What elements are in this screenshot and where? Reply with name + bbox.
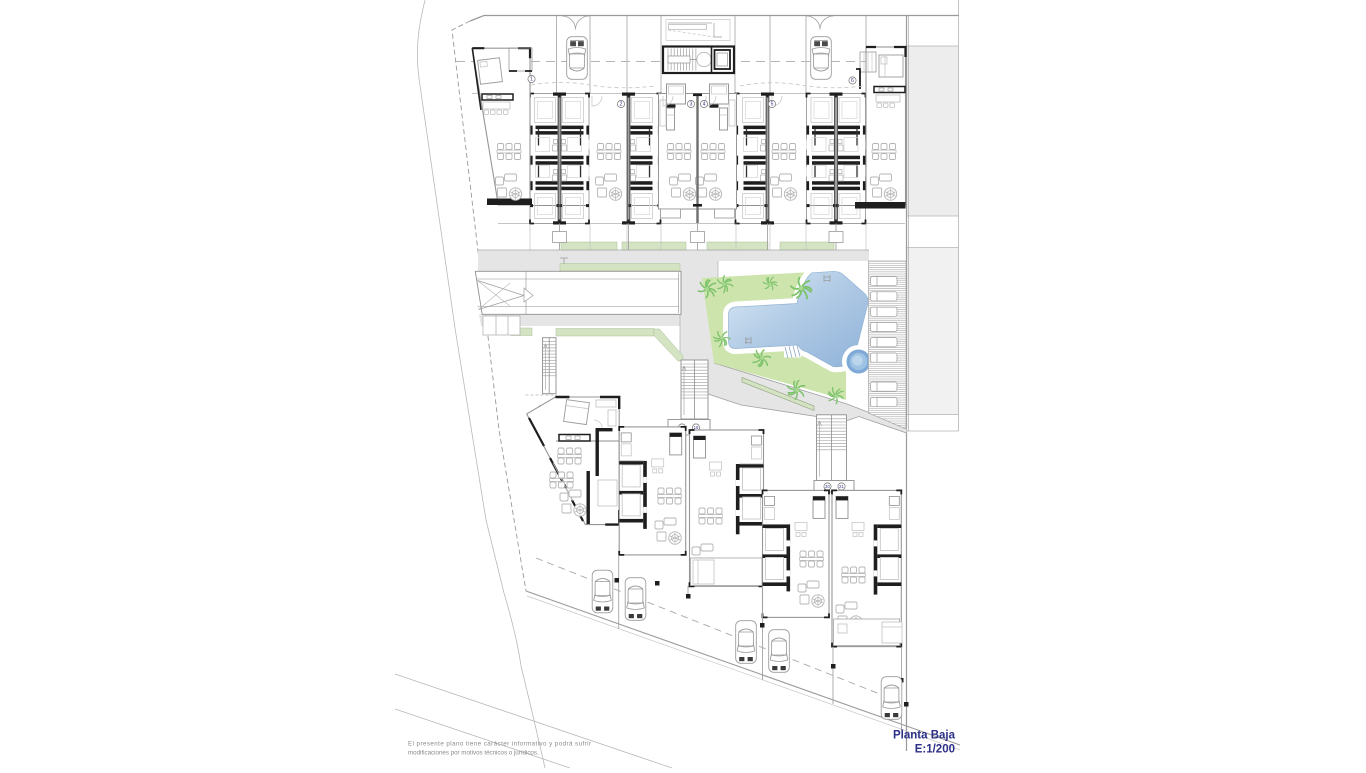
svg-text:E:1/200: E:1/200 xyxy=(915,744,955,756)
svg-text:6: 6 xyxy=(851,78,854,84)
svg-text:3: 3 xyxy=(690,102,693,108)
svg-text:1: 1 xyxy=(530,77,533,83)
svg-text:5: 5 xyxy=(771,102,774,108)
svg-text:modificaciones por motivos téc: modificaciones por motivos técnicos o ju… xyxy=(408,750,539,757)
svg-text:21: 21 xyxy=(839,484,844,489)
svg-text:El presente plano tiene caráct: El presente plano tiene carácter informa… xyxy=(408,741,591,748)
svg-text:20: 20 xyxy=(825,484,830,489)
svg-text:Planta Baja: Planta Baja xyxy=(893,730,956,742)
svg-text:2: 2 xyxy=(620,102,623,108)
svg-text:4: 4 xyxy=(703,102,706,108)
